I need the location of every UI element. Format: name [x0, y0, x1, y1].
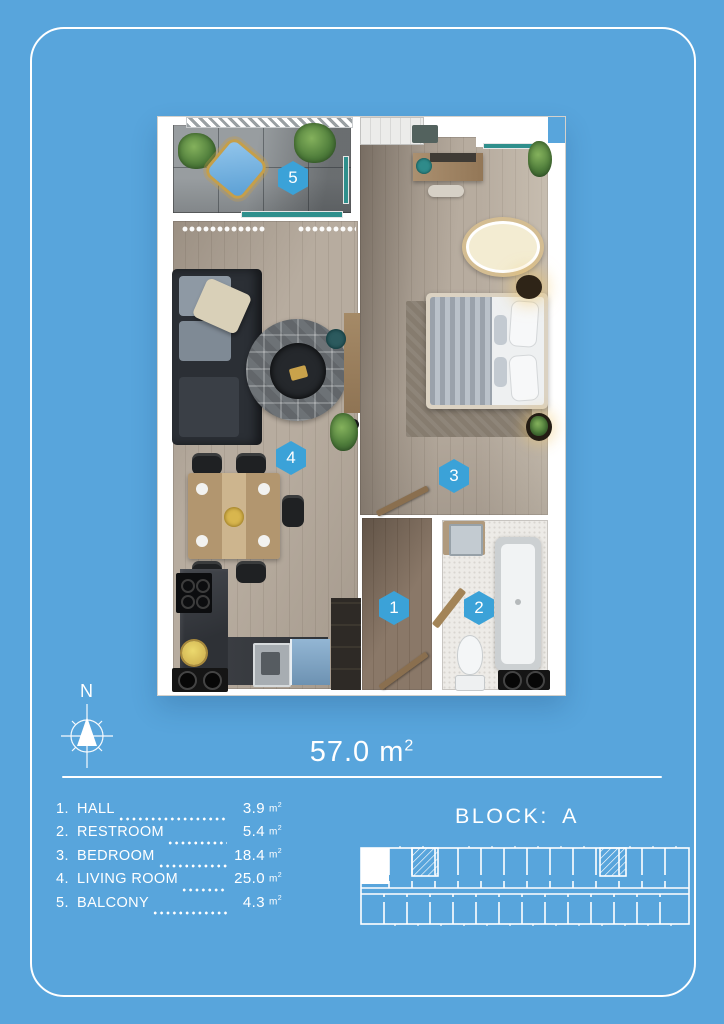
balcony-railing [186, 117, 353, 128]
balcony-plant-icon [294, 123, 336, 163]
room-list-item: 4.LIVING ROOM25.0m2 [56, 870, 282, 893]
room-area: 4.3 [231, 894, 265, 911]
room-name: BEDROOM [77, 848, 155, 864]
room-unit: m2 [269, 802, 282, 814]
toilet [455, 635, 483, 691]
fruit-bowl [182, 641, 206, 665]
dining-chair [236, 453, 266, 475]
stove-icon [176, 573, 212, 613]
dining-chair [236, 561, 266, 583]
room-unit: m2 [269, 895, 282, 907]
room-index: 2. [56, 824, 77, 840]
room-name: HALL [77, 801, 115, 817]
room-index: 5. [56, 895, 77, 911]
entry-cabinet [412, 125, 438, 143]
room-name: BALCONY [77, 895, 149, 911]
room-name: LIVING ROOM [77, 871, 178, 887]
curtain [298, 225, 356, 234]
room-list: 1.HALL3.9m2 2.RESTROOM5.4m2 3.BEDROOM18.… [56, 800, 282, 917]
room-area: 25.0 [231, 870, 265, 887]
room-index: 4. [56, 871, 77, 887]
dining-table [188, 473, 280, 559]
total-area-label: 57.0 m2 [0, 736, 724, 769]
room-area: 3.9 [231, 800, 265, 817]
dining-chair [192, 453, 222, 475]
area-value: 57.0 [310, 736, 370, 768]
area-unit: m [379, 736, 404, 768]
living-plant-icon [330, 413, 358, 451]
marker-number: 3 [449, 466, 458, 486]
bedroom-plant-icon [528, 141, 552, 177]
balcony-side-window [344, 157, 348, 203]
marker-number: 5 [288, 168, 297, 188]
pouf [516, 275, 542, 299]
highlighted-unit [361, 848, 389, 884]
room-index: 1. [56, 801, 77, 817]
block-label: BLOCK: A [352, 804, 682, 829]
marker-number: 4 [286, 448, 295, 468]
marker-number: 2 [474, 598, 483, 618]
room-index: 3. [56, 848, 77, 864]
kitchen-sink [253, 643, 291, 687]
room-list-item: 2.RESTROOM5.4m2 [56, 823, 282, 846]
room-unit: m2 [269, 848, 282, 860]
room-list-item: 3.BEDROOM18.4m2 [56, 847, 282, 870]
curtain [182, 225, 266, 234]
coffee-table [270, 343, 326, 399]
dot-leader [182, 885, 227, 894]
plan-notch [548, 117, 565, 143]
room-area: 5.4 [231, 823, 265, 840]
divider-line [62, 776, 662, 778]
balcony-door-window [242, 212, 342, 217]
room-list-item: 1.HALL3.9m2 [56, 800, 282, 823]
bench [428, 185, 464, 197]
dot-leader [119, 814, 227, 823]
desk-chair [326, 329, 346, 349]
crib [462, 217, 544, 277]
side-table [526, 413, 552, 441]
room-list-item: 5.BALCONY4.3m2 [56, 894, 282, 917]
room-area: 18.4 [231, 847, 265, 864]
building-key-plan [360, 844, 690, 928]
room-name: RESTROOM [77, 824, 164, 840]
bathroom-sink [443, 521, 485, 555]
area-exponent: 2 [404, 737, 414, 754]
wardrobe [331, 598, 361, 690]
sideboard [344, 313, 360, 413]
dot-leader [168, 838, 227, 847]
dot-leader [159, 861, 227, 870]
floor-plan: 1 2 3 4 5 [158, 117, 565, 695]
dresser [413, 153, 483, 181]
bed [426, 293, 548, 409]
room-unit: m2 [269, 825, 282, 837]
marker-number: 1 [389, 598, 398, 618]
dot-leader [153, 908, 227, 917]
room-unit: m2 [269, 872, 282, 884]
bathtub [495, 537, 541, 671]
compass-north-label: N [58, 681, 116, 702]
dining-chair [282, 495, 304, 527]
vent-grille [498, 670, 550, 690]
floor-plan-page: { "colors":{ "background_blue":"#58a5dc"… [0, 0, 724, 1024]
vent-grille [172, 668, 228, 692]
dishwasher [290, 639, 330, 685]
